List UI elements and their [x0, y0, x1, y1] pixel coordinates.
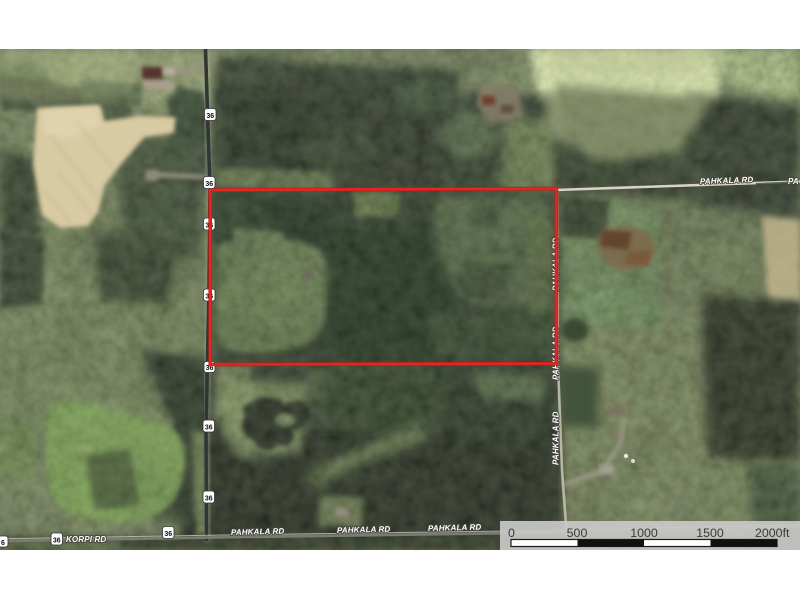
svg-text:KORPI RD: KORPI RD [66, 535, 106, 544]
svg-text:PAHKALA RD: PAHKALA RD [552, 411, 561, 465]
svg-text:PA: PA [788, 177, 799, 186]
svg-text:PAHKALA RD: PAHKALA RD [231, 527, 285, 537]
svg-text:36: 36 [53, 537, 61, 544]
svg-text:36: 36 [205, 495, 213, 502]
svg-text:PAHKALA RD: PAHKALA RD [700, 175, 754, 186]
svg-text:6: 6 [1, 540, 5, 547]
svg-text:PAHKALA RD: PAHKALA RD [428, 523, 482, 533]
svg-text:36: 36 [206, 113, 214, 120]
svg-text:PAHKALA RD: PAHKALA RD [337, 525, 391, 535]
svg-text:36: 36 [205, 181, 213, 188]
svg-text:36: 36 [205, 424, 213, 431]
svg-text:2000ft: 2000ft [755, 526, 790, 540]
svg-text:1000: 1000 [630, 526, 658, 540]
svg-text:0: 0 [508, 526, 515, 540]
svg-text:1500: 1500 [696, 526, 724, 540]
svg-text:36: 36 [164, 531, 172, 538]
svg-text:500: 500 [567, 526, 588, 540]
